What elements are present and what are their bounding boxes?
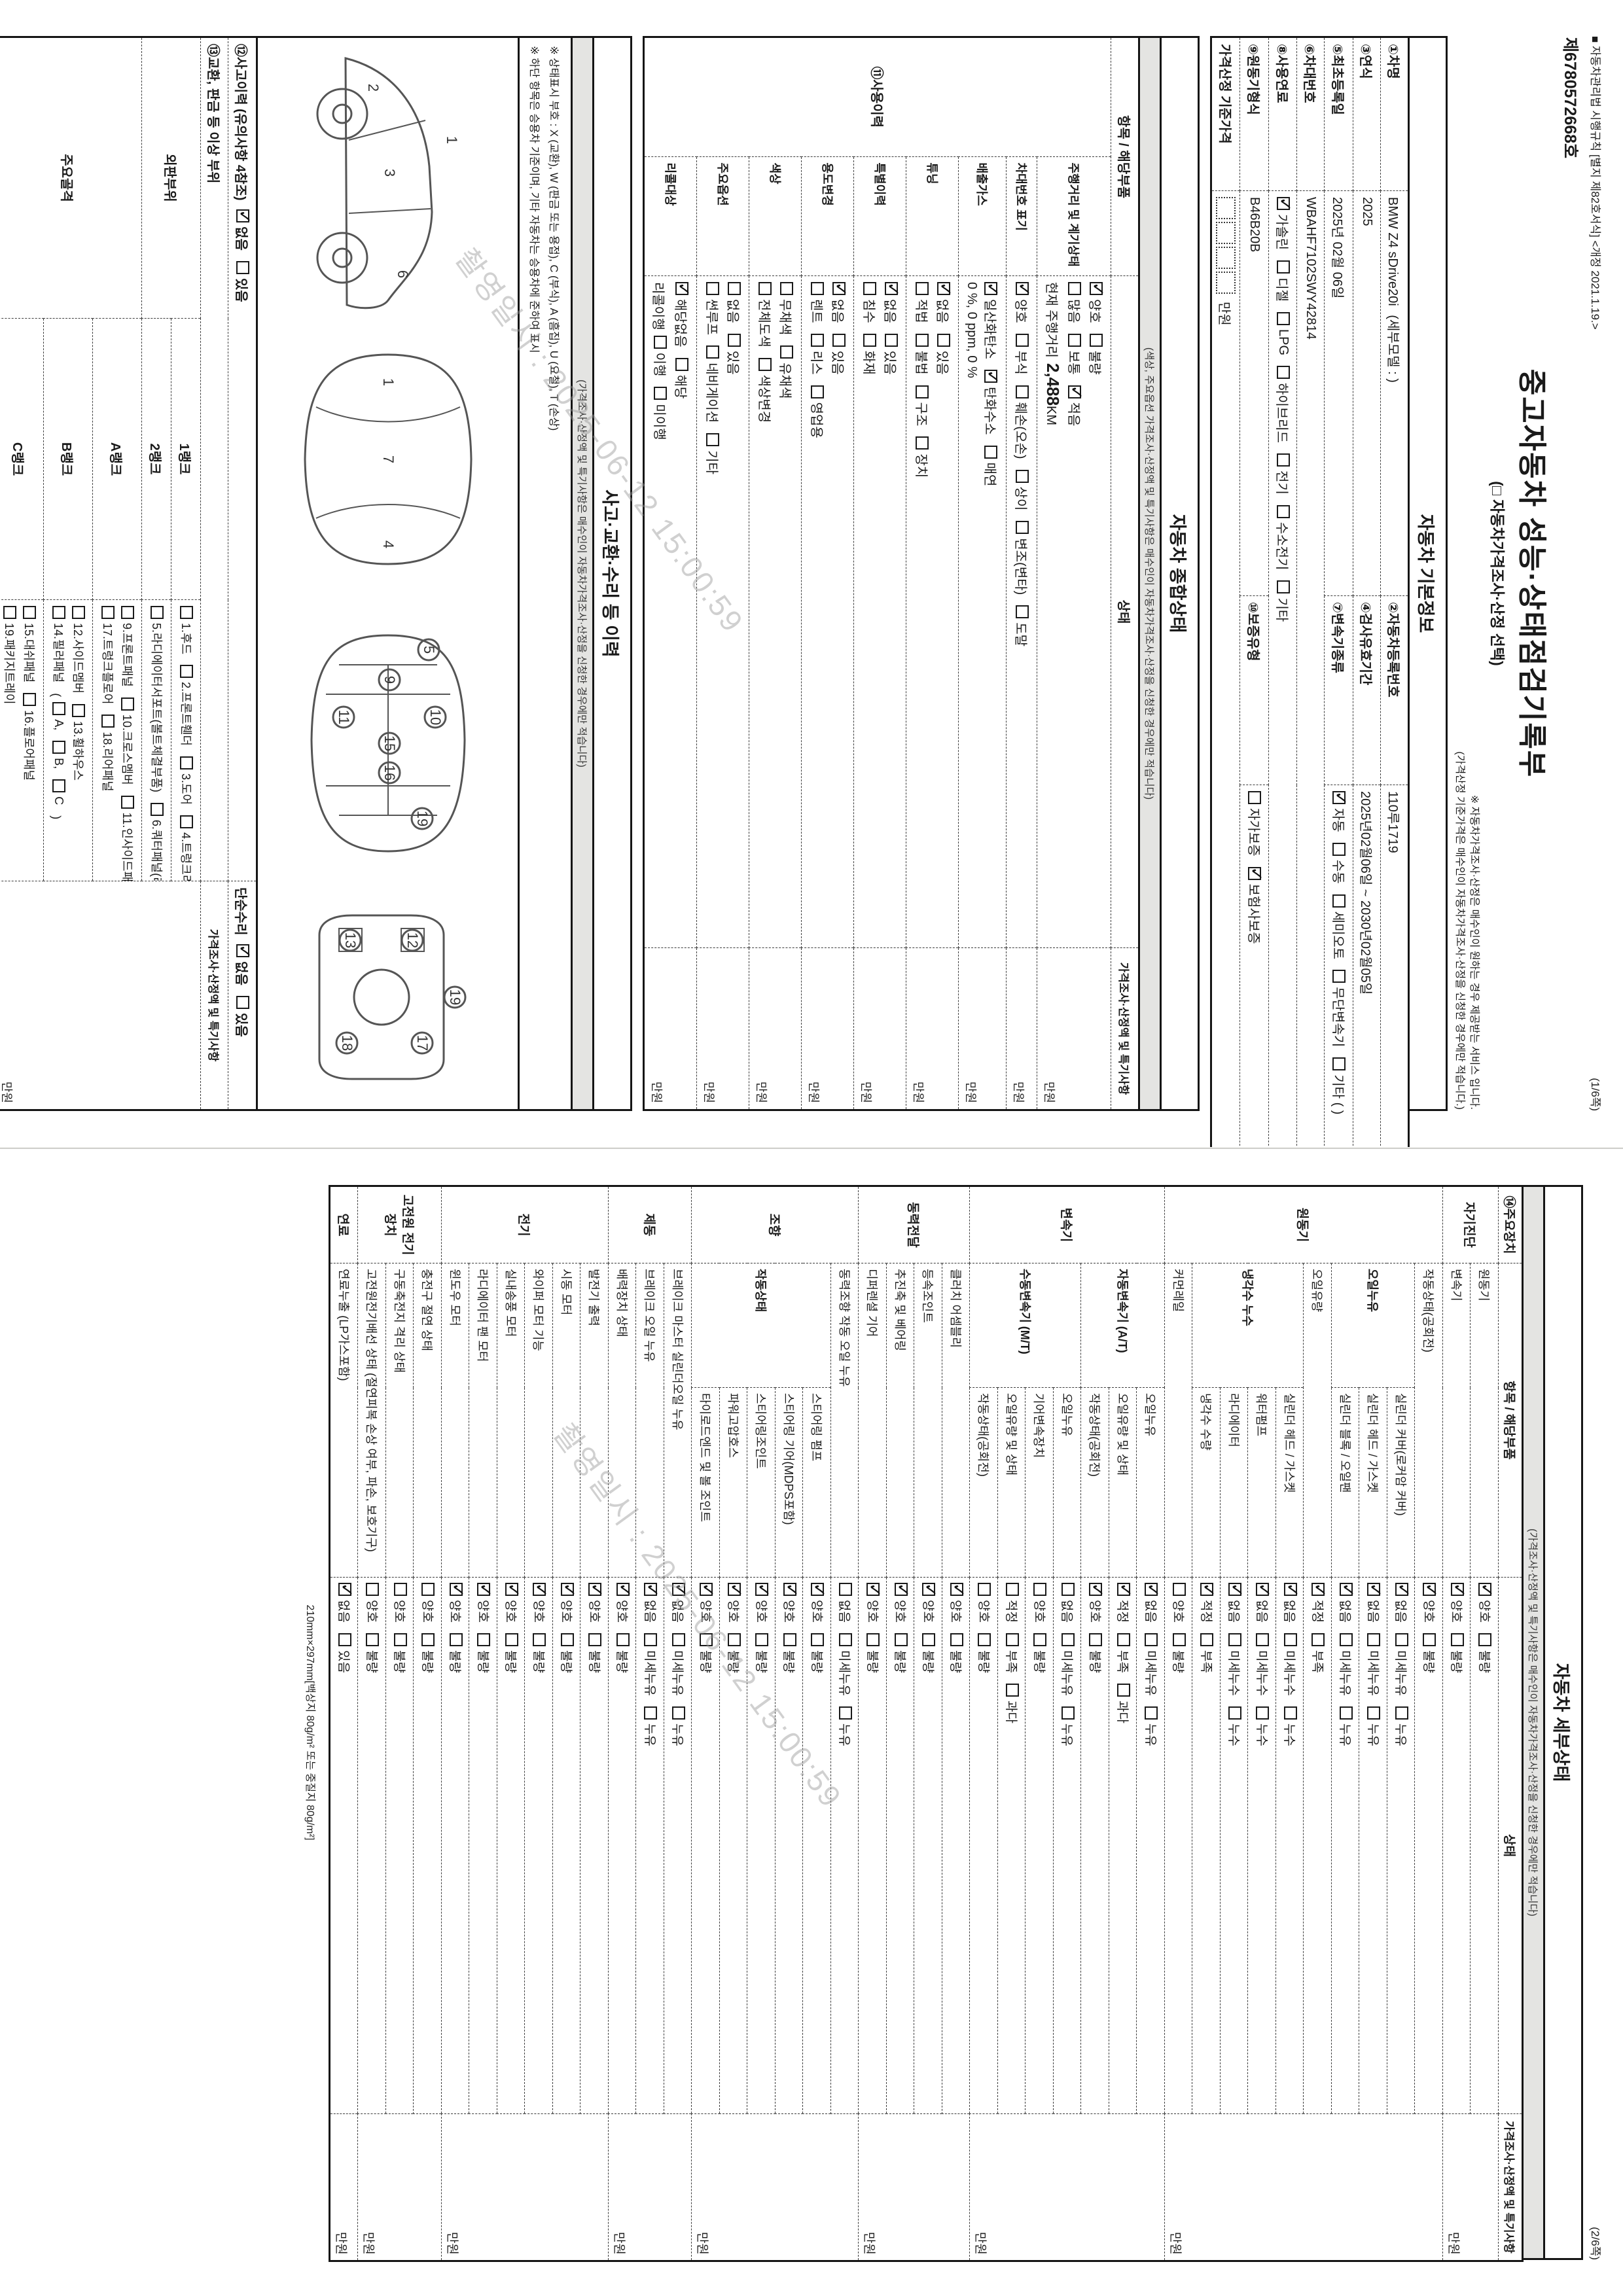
checkbox-option[interactable]: 양호 [893,1583,910,1623]
checkbox-option[interactable]: 도말 [1012,605,1031,646]
checkbox-option[interactable]: 16.플로어패널 [21,693,38,781]
checkbox-option[interactable]: 많음 [1065,282,1084,323]
checkbox[interactable] [1117,1633,1130,1646]
checkbox[interactable] [1034,1633,1047,1646]
checkbox-option[interactable]: 미세누유 [1143,1633,1160,1696]
checkbox[interactable] [811,282,824,295]
checkbox-option[interactable]: 전체도색 [756,282,775,347]
checkbox[interactable] [916,385,929,398]
checkbox[interactable] [1332,970,1346,983]
checkbox-option[interactable]: 양호 [586,1583,604,1623]
checkbox-checked[interactable] [478,1583,491,1596]
checkbox[interactable] [589,1633,602,1646]
checkbox-option[interactable]: 양호 [948,1583,966,1623]
checkbox-option[interactable]: 있음 [233,261,252,302]
checkbox-checked[interactable] [1284,1583,1297,1596]
checkbox-option[interactable]: 렌트 [808,282,827,323]
checkbox-option[interactable]: 불량 [559,1633,577,1673]
checkbox-option[interactable]: 무채색 [777,282,796,335]
checkbox-option[interactable]: 불량 [893,1633,910,1673]
checkbox-option[interactable]: 불량 [1171,1633,1188,1673]
checkbox-option[interactable]: 불량 [419,1633,437,1673]
checkbox[interactable] [1061,1706,1075,1720]
checkbox-option[interactable]: 없음 [1143,1583,1160,1623]
checkbox-option[interactable]: 양호 [920,1583,938,1623]
checkbox[interactable] [1173,1633,1186,1646]
checkbox-option[interactable]: 구조 [913,385,932,427]
checkbox-option[interactable]: 보통 [1065,334,1084,375]
checkbox[interactable] [758,358,772,371]
checkbox-checked[interactable] [1090,1583,1103,1596]
checkbox[interactable] [1068,334,1081,347]
checkbox-option[interactable]: 부식 [1012,334,1031,375]
checkbox-option[interactable]: 누유 [1365,1706,1383,1746]
checkbox-option[interactable]: 가솔린 [1274,197,1293,250]
checkbox[interactable] [23,606,36,619]
checkbox-option[interactable]: 불량 [698,1633,715,1673]
checkbox-option[interactable]: 수동 [1330,843,1349,884]
checkbox-checked[interactable] [783,1583,796,1596]
checkbox-option[interactable]: 미세누수 [1282,1633,1300,1696]
checkbox-option[interactable]: A, [52,702,65,730]
checkbox-option[interactable]: 부족 [1115,1633,1133,1673]
input-box[interactable] [1216,197,1236,219]
checkbox-option[interactable]: 보험사보증 [1245,867,1264,944]
checkbox-checked[interactable] [672,1583,685,1596]
checkbox[interactable] [1277,453,1290,467]
checkbox[interactable] [654,387,667,400]
checkbox[interactable] [1006,1583,1019,1596]
checkbox[interactable] [151,606,164,619]
checkbox-option[interactable]: 있음 [934,334,953,375]
checkbox-option[interactable]: 양호 [976,1583,993,1623]
checkbox-option[interactable]: 불량 [448,1633,465,1673]
checkbox-option[interactable]: 10.크로스멤버 [119,698,136,785]
checkbox-option[interactable]: 자가보증 [1245,791,1264,857]
checkbox[interactable] [1228,1706,1241,1720]
checkbox-option[interactable]: 없음 [934,282,953,323]
checkbox[interactable] [1248,791,1261,804]
checkbox[interactable] [863,282,876,295]
checkbox-option[interactable]: 양호 [698,1583,715,1623]
checkbox-option[interactable]: 부족 [1004,1633,1022,1673]
checkbox-checked[interactable] [616,1583,630,1596]
checkbox-option[interactable]: 불량 [586,1633,604,1673]
checkbox[interactable] [1395,1633,1408,1646]
checkbox[interactable] [645,1706,658,1720]
checkbox-option[interactable]: 없음 [336,1583,354,1623]
checkbox[interactable] [916,282,929,295]
checkbox[interactable] [758,282,772,295]
checkbox-checked[interactable] [1423,1583,1436,1596]
checkbox-option[interactable]: 불량 [1421,1633,1438,1673]
checkbox-option[interactable]: 불량 [615,1633,632,1673]
checkbox-option[interactable]: 누유 [1060,1706,1077,1746]
checkbox-option[interactable]: 무단변속기 [1330,970,1349,1047]
checkbox-option[interactable]: 있음 [336,1633,354,1673]
checkbox-option[interactable]: 불량 [364,1633,382,1673]
checkbox-checked[interactable] [895,1583,908,1596]
checkbox[interactable] [561,1633,574,1646]
checkbox[interactable] [1277,366,1290,379]
checkbox-option[interactable]: B, [52,741,65,769]
checkbox[interactable] [1340,1633,1353,1646]
checkbox[interactable] [72,704,85,717]
checkbox[interactable] [728,334,741,347]
checkbox[interactable] [1016,521,1029,534]
checkbox[interactable] [885,334,898,347]
checkbox[interactable] [72,606,85,619]
checkbox-option[interactable]: 불법 [913,334,932,375]
checkbox-option[interactable]: 6.쿼터패널(리어휀더) [149,803,166,881]
checkbox-option[interactable]: 누수 [1254,1706,1272,1746]
checkbox-option[interactable]: 양호 [753,1583,771,1623]
checkbox-checked[interactable] [1277,197,1290,210]
checkbox-checked[interactable] [1117,1583,1130,1596]
checkbox-option[interactable]: 양호 [419,1583,437,1623]
checkbox-checked[interactable] [1228,1583,1241,1596]
checkbox-option[interactable]: 불량 [809,1633,827,1673]
checkbox-option[interactable]: 전기 [1274,453,1293,495]
checkbox[interactable] [811,334,824,347]
checkbox-option[interactable]: C [52,779,65,805]
checkbox[interactable] [52,741,65,754]
checkbox-option[interactable]: 디젤 [1274,260,1293,302]
checkbox-option[interactable]: 양호 [531,1583,548,1623]
checkbox-option[interactable]: 미세누수 [1254,1633,1272,1696]
checkbox[interactable] [23,693,36,706]
checkbox[interactable] [978,1583,991,1596]
checkbox-option[interactable]: 없음 [233,944,252,985]
checkbox[interactable] [3,606,16,619]
checkbox-checked[interactable] [589,1583,602,1596]
checkbox-option[interactable]: 양호 [475,1583,493,1623]
checkbox[interactable] [1228,1633,1241,1646]
checkbox[interactable] [52,779,65,792]
checkbox[interactable] [839,1583,852,1596]
checkbox[interactable] [1117,1684,1130,1697]
checkbox[interactable] [916,334,929,347]
checkbox-option[interactable]: 리스 [808,334,827,375]
checkbox[interactable] [52,702,65,715]
checkbox-option[interactable]: 양호 [1476,1583,1494,1623]
checkbox[interactable] [675,358,688,371]
checkbox-option[interactable]: 누유 [1393,1706,1411,1746]
checkbox-option[interactable]: 누수 [1226,1706,1244,1746]
checkbox[interactable] [1145,1706,1158,1720]
checkbox[interactable] [101,715,115,728]
checkbox-option[interactable]: 부족 [1198,1633,1216,1673]
checkbox-option[interactable]: 미이행 [651,387,670,440]
checkbox-option[interactable]: 네비게이션 [704,345,722,423]
checkbox[interactable] [839,1633,852,1646]
checkbox[interactable] [978,1633,991,1646]
checkbox-option[interactable]: 양호 [559,1583,577,1623]
checkbox-option[interactable]: 15.대쉬패널 [21,606,38,682]
checkbox[interactable] [645,1633,658,1646]
checkbox-option[interactable]: 색상변경 [756,358,775,423]
checkbox[interactable] [1277,260,1290,274]
checkbox-option[interactable]: 탄화수소 [982,370,1001,435]
checkbox-option[interactable]: 없음 [837,1583,855,1623]
checkbox-option[interactable]: 없음 [882,282,901,323]
checkbox-option[interactable]: 미세누유 [1060,1633,1077,1696]
checkbox[interactable] [780,282,793,295]
checkbox-option[interactable]: 매연 [982,446,1001,487]
document-title-option[interactable]: (□ 자동차가격조사·산정 선택) [1488,36,1510,1111]
checkbox[interactable] [1451,1633,1464,1646]
checkbox[interactable] [422,1583,435,1596]
checkbox-option[interactable]: 없음 [724,282,743,323]
checkbox-option[interactable]: 유채색 [777,345,796,398]
checkbox-option[interactable]: 양호 [1171,1583,1188,1623]
checkbox[interactable] [1277,505,1290,518]
checkbox-checked[interactable] [1451,1583,1464,1596]
checkbox-option[interactable]: 과다 [1115,1684,1133,1723]
checkbox[interactable] [180,815,193,828]
checkbox-option[interactable]: 불량 [948,1633,966,1673]
checkbox-option[interactable]: 과다 [1004,1684,1022,1723]
checkbox-option[interactable]: 불량 [475,1633,493,1673]
checkbox-checked[interactable] [950,1583,963,1596]
checkbox-option[interactable]: 불량 [753,1633,771,1673]
checkbox[interactable] [1312,1633,1325,1646]
checkbox[interactable] [1368,1706,1381,1720]
checkbox-option[interactable]: 누유 [837,1706,855,1746]
checkbox[interactable] [366,1583,380,1596]
checkbox[interactable] [422,1633,435,1646]
checkbox-option[interactable]: 없음 [1254,1583,1272,1623]
checkbox[interactable] [984,446,997,459]
checkbox[interactable] [839,1706,852,1720]
checkbox-option[interactable]: 수소전기 [1274,505,1293,571]
checkbox-checked[interactable] [450,1583,463,1596]
checkbox[interactable] [366,1633,380,1646]
checkbox[interactable] [52,606,65,619]
checkbox-option[interactable]: 불량 [1476,1633,1494,1673]
checkbox-option[interactable]: 19.패키지트레이 [1,606,18,704]
checkbox[interactable] [706,282,719,295]
checkbox-option[interactable]: 없음 [233,209,252,251]
checkbox-checked[interactable] [675,282,688,295]
checkbox-option[interactable]: 양호 [392,1583,410,1623]
checkbox[interactable] [1332,1057,1346,1070]
checkbox-option[interactable]: 적법 [913,282,932,323]
checkbox-option[interactable]: 하이브리드 [1274,366,1293,443]
checkbox[interactable] [1016,470,1029,483]
checkbox-option[interactable]: 불량 [503,1633,521,1673]
checkbox-option[interactable]: 미세누유 [670,1633,688,1696]
checkbox-option[interactable]: 상이 [1012,470,1031,511]
checkbox-option[interactable]: 미세누유 [1393,1633,1411,1696]
checkbox-checked[interactable] [984,370,997,383]
checkbox-option[interactable]: 있음 [829,334,848,375]
checkbox-option[interactable]: 미세누유 [837,1633,855,1696]
checkbox-option[interactable]: 양호 [1012,282,1031,323]
checkbox[interactable] [1479,1633,1492,1646]
checkbox[interactable] [101,606,115,619]
checkbox[interactable] [1090,1633,1103,1646]
input-box[interactable] [1216,247,1236,269]
checkbox-option[interactable]: 14.필러패널 [50,606,67,682]
checkbox[interactable] [1277,580,1290,593]
checkbox[interactable] [672,1633,685,1646]
checkbox[interactable] [728,282,741,295]
checkbox[interactable] [1090,334,1103,347]
checkbox[interactable] [1016,334,1029,347]
checkbox-option[interactable]: 누유 [642,1706,660,1746]
checkbox[interactable] [916,436,929,450]
checkbox-option[interactable]: 미세누유 [1338,1633,1355,1696]
checkbox[interactable] [1395,1706,1408,1720]
checkbox-option[interactable]: 불량 [726,1633,743,1673]
checkbox[interactable] [1332,843,1346,856]
checkbox[interactable] [1284,1633,1297,1646]
checkbox-option[interactable]: 누수 [1282,1706,1300,1746]
checkbox-option[interactable]: 적정 [1198,1583,1216,1623]
checkbox-option[interactable]: 화재 [861,334,880,375]
checkbox-option[interactable]: 세미오토 [1330,894,1349,960]
checkbox-checked[interactable] [236,944,249,957]
checkbox-option[interactable]: 양호 [1449,1583,1467,1623]
checkbox[interactable] [121,796,134,809]
checkbox-checked[interactable] [645,1583,658,1596]
input-box[interactable] [1216,272,1236,294]
checkbox[interactable] [1173,1583,1186,1596]
checkbox-checked[interactable] [885,282,898,295]
checkbox[interactable] [1284,1706,1297,1720]
checkbox-checked[interactable] [1068,385,1081,398]
checkbox-checked[interactable] [867,1583,880,1596]
checkbox-option[interactable]: 변조(변타) [1012,521,1031,595]
checkbox-option[interactable]: 불량 [865,1633,882,1673]
checkbox-option[interactable]: 기타 [704,433,722,474]
checkbox[interactable] [1006,1684,1019,1697]
checkbox-option[interactable]: 양호 [615,1583,632,1623]
checkbox[interactable] [832,334,846,347]
checkbox[interactable] [505,1633,518,1646]
checkbox[interactable] [950,1633,963,1646]
checkbox[interactable] [1277,312,1290,325]
checkbox[interactable] [1257,1706,1270,1720]
checkbox[interactable] [121,606,134,619]
checkbox-option[interactable]: 해당 [672,358,691,399]
checkbox-option[interactable]: 누유 [1143,1706,1160,1746]
checkbox[interactable] [1034,1583,1047,1596]
checkbox-checked[interactable] [1395,1583,1408,1596]
checkbox[interactable] [706,433,719,446]
checkbox-option[interactable]: 이행 [651,336,670,377]
checkbox-option[interactable]: 1.후드 [178,606,195,654]
checkbox-option[interactable]: 불량 [976,1633,993,1673]
checkbox-checked[interactable] [338,1583,351,1596]
checkbox-checked[interactable] [561,1583,574,1596]
checkbox-checked[interactable] [1332,791,1346,804]
checkbox-checked[interactable] [1145,1583,1158,1596]
checkbox[interactable] [1368,1633,1381,1646]
checkbox[interactable] [1257,1633,1270,1646]
checkbox-option[interactable]: 없음 [1365,1583,1383,1623]
checkbox[interactable] [180,756,193,769]
checkbox[interactable] [756,1633,769,1646]
checkbox-option[interactable]: 양호 [448,1583,465,1623]
checkbox-option[interactable]: 불량 [920,1633,938,1673]
checkbox-checked[interactable] [1257,1583,1270,1596]
checkbox-option[interactable]: 18.리어패널 [99,715,116,791]
checkbox[interactable] [121,698,134,711]
checkbox-checked[interactable] [1248,867,1261,880]
checkbox[interactable] [1006,1633,1019,1646]
checkbox[interactable] [236,996,249,1009]
checkbox-option[interactable]: 적음 [1065,385,1084,427]
checkbox-option[interactable]: 양호 [1421,1583,1438,1623]
checkbox-option[interactable]: 불량 [531,1633,548,1673]
checkbox-checked[interactable] [937,282,950,295]
checkbox-option[interactable]: 없음 [1338,1583,1355,1623]
checkbox-option[interactable]: 있음 [882,334,901,375]
checkbox[interactable] [895,1633,908,1646]
checkbox-checked[interactable] [236,209,249,222]
checkbox[interactable] [923,1633,936,1646]
checkbox[interactable] [1423,1633,1436,1646]
checkbox-option[interactable]: 없음 [1393,1583,1411,1623]
checkbox-checked[interactable] [811,1583,825,1596]
checkbox[interactable] [728,1633,741,1646]
checkbox-checked[interactable] [1312,1583,1325,1596]
checkbox[interactable] [1016,605,1029,618]
checkbox-checked[interactable] [505,1583,518,1596]
checkbox-option[interactable]: 양호 [865,1583,882,1623]
checkbox[interactable] [1068,282,1081,295]
checkbox-option[interactable]: 부족 [1310,1633,1327,1673]
checkbox-checked[interactable] [984,282,997,295]
checkbox-option[interactable]: 훼손(오손) [1012,385,1031,459]
checkbox[interactable] [394,1633,407,1646]
checkbox-option[interactable]: 없음 [642,1583,660,1623]
checkbox-checked[interactable] [1340,1583,1353,1596]
checkbox[interactable] [1340,1706,1353,1720]
checkbox[interactable] [1061,1583,1075,1596]
checkbox-option[interactable]: 불량 [1031,1633,1049,1673]
checkbox-option[interactable]: 기타 ( ) [1330,1057,1349,1114]
checkbox-option[interactable]: 침수 [861,282,880,323]
checkbox-option[interactable]: 9.프론트패널 [119,606,136,687]
checkbox[interactable] [1332,894,1346,908]
checkbox-option[interactable]: 12.사이드멤버 [70,606,87,694]
checkbox-option[interactable]: 자동 [1330,791,1349,832]
checkbox[interactable] [180,606,193,619]
checkbox-option[interactable]: 누유 [670,1706,688,1746]
checkbox-option[interactable]: 미세누수 [1226,1633,1244,1696]
checkbox-option[interactable]: 영업용 [808,385,827,438]
checkbox-checked[interactable] [1090,282,1103,295]
checkbox-option[interactable]: 적정 [1310,1583,1327,1623]
checkbox-option[interactable]: 썬루프 [704,282,722,335]
checkbox-option[interactable]: 없음 [1282,1583,1300,1623]
checkbox-option[interactable]: 5.라디에이터서포트(볼트체결부품) [149,606,166,792]
checkbox[interactable] [783,1633,796,1646]
checkbox-option[interactable]: 장치 [913,436,932,478]
checkbox[interactable] [654,336,667,349]
checkbox[interactable] [1016,385,1029,398]
checkbox[interactable] [450,1633,463,1646]
checkbox[interactable] [811,1633,825,1646]
checkbox[interactable] [863,334,876,347]
checkbox-option[interactable]: 누유 [1338,1706,1355,1746]
checkbox[interactable] [1061,1633,1075,1646]
checkbox-option[interactable]: 적정 [1004,1583,1022,1623]
checkbox-option[interactable]: 11.인사이드패널 [119,796,136,881]
